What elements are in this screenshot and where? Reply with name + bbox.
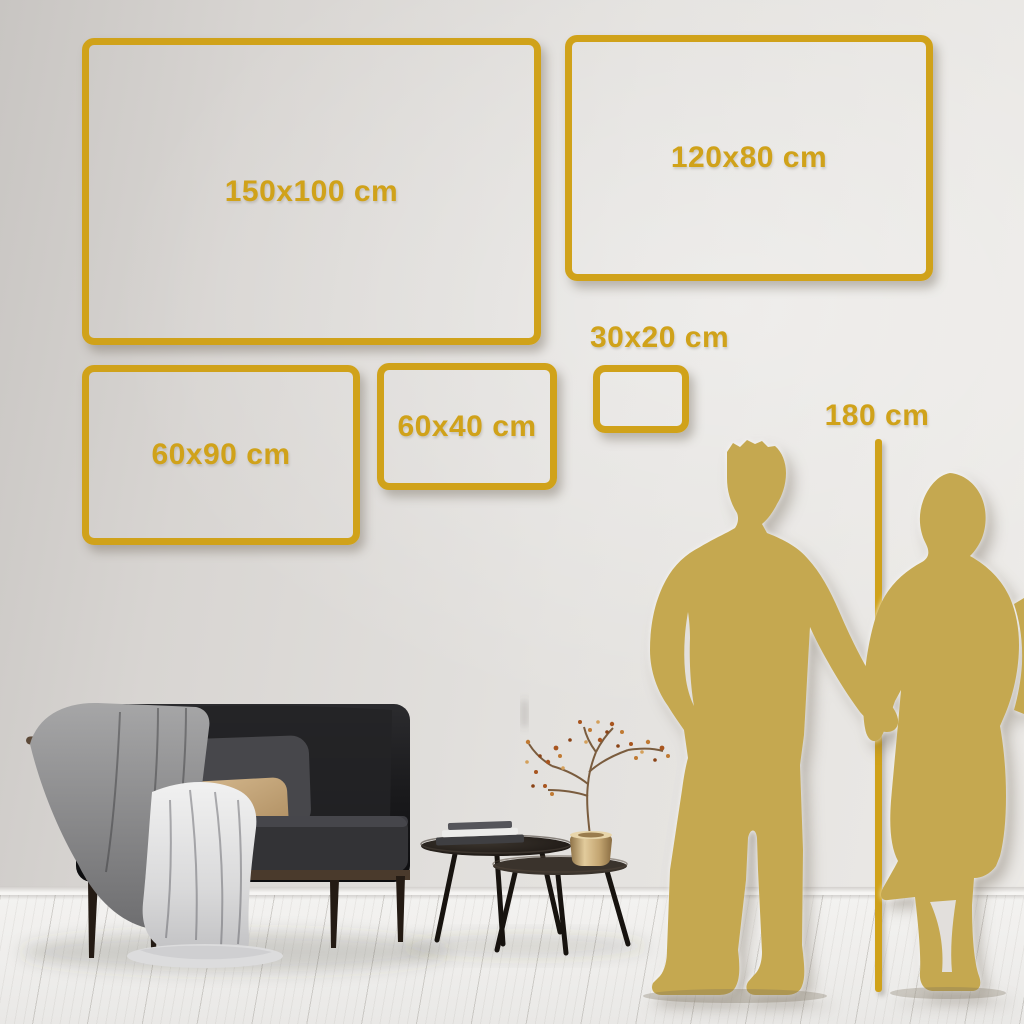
size-guide-graphic: 150x100 cm 120x80 cm 60x90 cm 60x40 cm 3… (0, 0, 1024, 1024)
man-feet-shadow (643, 989, 827, 1003)
man-silhouette (650, 440, 898, 995)
couple-silhouette (0, 0, 1024, 1024)
woman-feet-shadow (890, 987, 1006, 999)
